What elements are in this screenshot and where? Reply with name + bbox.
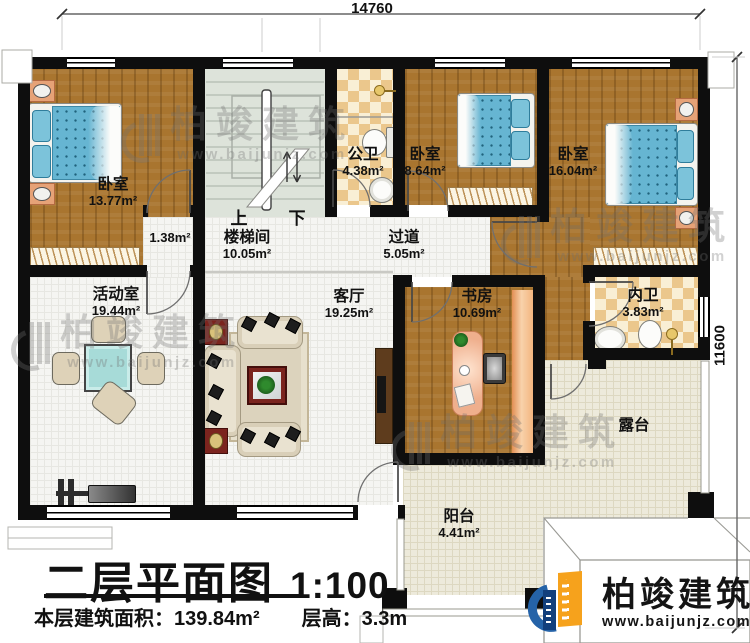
room-name: 公卫: [342, 146, 383, 164]
logo-brand: 柏竣建筑: [602, 577, 750, 614]
room-name: 楼梯间: [223, 229, 271, 247]
plan-scale: 1:100: [290, 565, 390, 607]
dimension-right: 11600: [712, 316, 729, 376]
room-name: 卧室: [89, 176, 137, 194]
area-label: 本层建筑面积：: [34, 608, 174, 630]
room-label-balcony: 阳台 4.41m²: [438, 508, 479, 541]
room-area: 19.25m²: [325, 306, 373, 321]
room-area: 4.38m²: [342, 164, 383, 179]
logo-building-icon: [528, 570, 594, 640]
stair-down-label: 下: [289, 204, 306, 229]
dimension-top: 14760: [351, 0, 393, 17]
room-area: 5.05m²: [383, 247, 424, 262]
room-area: 19.44m²: [92, 304, 140, 319]
room-label-small-hall: 1.38m²: [149, 231, 190, 246]
room-name: 卧室: [549, 146, 597, 164]
room-area: 16.04m²: [549, 164, 597, 179]
room-name: 卧室: [404, 146, 445, 164]
room-label-terrace: 露台: [618, 417, 649, 435]
floor-height-value: 3.3m: [362, 608, 408, 630]
room-label-bedroom-right: 卧室 16.04m²: [549, 146, 597, 179]
logo-url: www.baijunjz.com: [602, 614, 750, 630]
room-label-stairwell: 楼梯间 10.05m²: [223, 229, 271, 262]
room-label-activity: 活动室 19.44m²: [92, 286, 140, 319]
staircase: [206, 82, 324, 210]
room-area: 8.64m²: [404, 164, 445, 179]
room-name: 露台: [618, 417, 649, 435]
room-label-study: 书房 10.69m²: [453, 288, 501, 321]
room-name: 活动室: [92, 286, 140, 304]
room-name: 书房: [453, 288, 501, 306]
room-area: 4.41m²: [438, 526, 479, 541]
room-label-bedroom-left: 卧室 13.77m²: [89, 176, 137, 209]
title-underline: [44, 594, 302, 598]
room-label-public-bath: 公卫 4.38m²: [342, 146, 383, 179]
room-area: 1.38m²: [149, 231, 190, 246]
floor-plan: 14760 11600 卧室 13.77m² 1.38m² 上 下 楼梯间 10…: [0, 0, 750, 643]
room-area: 10.05m²: [223, 247, 271, 262]
room-area: 10.69m²: [453, 306, 501, 321]
room-name: 内卫: [622, 287, 663, 305]
plan-subtitle: 本层建筑面积：139.84m²层高：3.3m: [34, 602, 407, 631]
stair-up-label: 上: [231, 204, 248, 229]
room-area: 3.83m²: [622, 305, 663, 320]
room-name: 客厅: [325, 288, 373, 306]
ledge-top-left: [2, 50, 32, 83]
floor-height-label: 层高：: [302, 608, 362, 630]
room-label-bedroom-mid: 卧室 8.64m²: [404, 146, 445, 179]
door-symbols: [147, 170, 633, 502]
room-name: 阳台: [438, 508, 479, 526]
room-area: 13.77m²: [89, 194, 137, 209]
logo: 柏竣建筑 www.baijunjz.com: [602, 577, 750, 630]
room-label-ensuite-bath: 内卫 3.83m²: [622, 287, 663, 320]
room-label-hallway: 过道 5.05m²: [383, 229, 424, 262]
area-value: 139.84m²: [174, 608, 260, 630]
room-label-living: 客厅 19.25m²: [325, 288, 373, 321]
room-name: 过道: [383, 229, 424, 247]
